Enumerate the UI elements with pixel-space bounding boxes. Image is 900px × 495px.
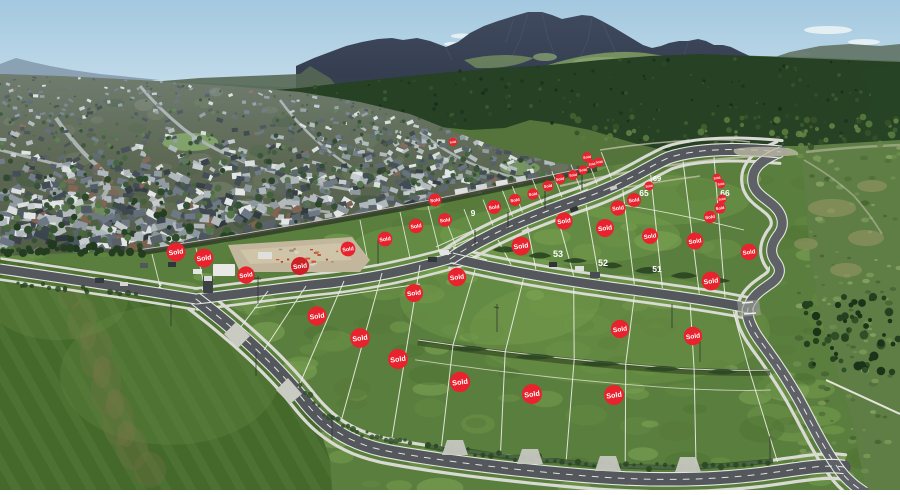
svg-text:53: 53: [553, 249, 563, 259]
svg-text:69: 69: [653, 174, 661, 183]
svg-text:52: 52: [598, 258, 608, 268]
svg-text:9: 9: [471, 208, 476, 218]
svg-text:51: 51: [652, 264, 662, 274]
